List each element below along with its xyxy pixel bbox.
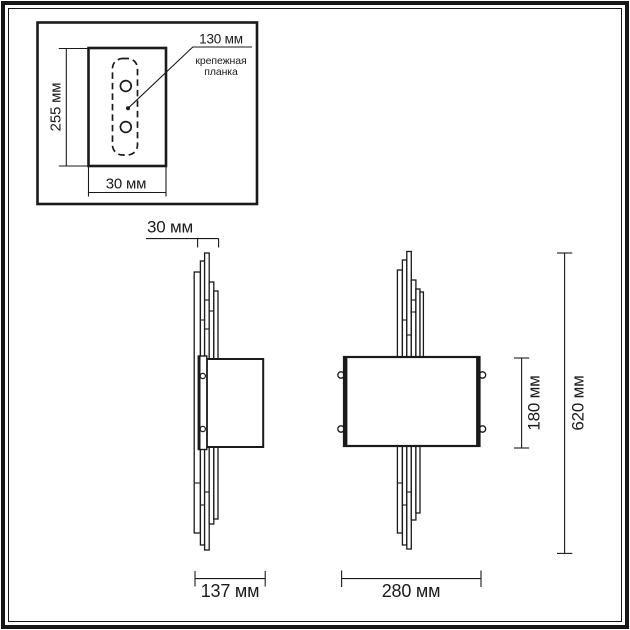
side-view-rod-width-label: 30 мм [147, 219, 193, 236]
mounting-bracket-label-line2: планка [195, 67, 246, 78]
front-view-shade-height-label: 180 мм [526, 375, 543, 430]
side-view-screw-top [200, 373, 205, 378]
side-view-drawing [146, 239, 265, 587]
side-view-rod-width-dimension [146, 239, 219, 248]
drawing-linework [0, 0, 630, 630]
front-view-total-height-label: 620 мм [570, 375, 587, 430]
screw-hole-top [120, 81, 131, 92]
inset-box [38, 23, 258, 205]
technical-drawing-canvas: 255 мм 30 мм 130 мм крепежная планка 30 … [0, 0, 630, 630]
side-view-screw-bottom [200, 426, 205, 431]
screw-hole-bottom [120, 122, 131, 133]
inset-height-dimension-label: 255 мм [49, 83, 64, 132]
mounting-bracket-dashed-outline [113, 59, 138, 156]
inset-width-dimension-label: 30 мм [106, 177, 146, 192]
front-view-width-label: 280 мм [382, 582, 441, 600]
inset-bracket-dimension-label: 130 мм [199, 32, 243, 46]
side-view-depth-label: 137 мм [201, 582, 260, 600]
mounting-bracket-label: крепежная планка [195, 56, 246, 78]
mounting-plate-detail [38, 23, 258, 205]
side-view-shade [207, 359, 263, 447]
front-view-shade [344, 357, 480, 446]
